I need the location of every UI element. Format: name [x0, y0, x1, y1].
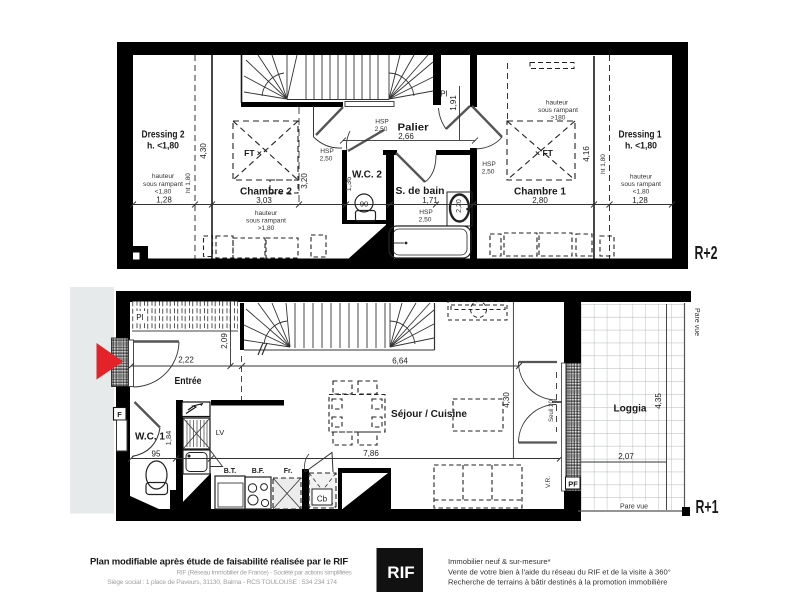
svg-text:Immobilier neuf & sur-mesure*: Immobilier neuf & sur-mesure* [448, 557, 551, 566]
svg-text:2,50: 2,50 [375, 126, 388, 133]
svg-text:Recherche de terrains à bâtir: Recherche de terrains à bâtir destinés à… [448, 578, 667, 587]
svg-text:2,80: 2,80 [532, 196, 548, 205]
svg-text:2,50: 2,50 [482, 169, 495, 176]
svg-text:7,86: 7,86 [363, 449, 379, 458]
svg-text:4,30: 4,30 [199, 143, 208, 159]
svg-text:90: 90 [360, 200, 368, 209]
svg-text:2,50: 2,50 [320, 156, 333, 163]
svg-text:Séjour / Cuisine: Séjour / Cuisine [391, 409, 467, 420]
svg-text:Plan modifiable après étude de: Plan modifiable après étude de faisabili… [90, 557, 348, 568]
svg-text:W.C. 1: W.C. 1 [135, 432, 165, 443]
svg-text:PI: PI [136, 313, 144, 322]
svg-text:Cb: Cb [317, 495, 328, 504]
svg-text:LV: LV [216, 428, 225, 437]
svg-text:HSP: HSP [375, 119, 389, 126]
svg-text:4,35: 4,35 [654, 393, 663, 409]
svg-text:PI: PI [440, 90, 448, 99]
svg-text:R+1: R+1 [696, 497, 719, 517]
svg-text:sous rampant: sous rampant [538, 107, 578, 114]
svg-text:2,66: 2,66 [398, 132, 414, 141]
svg-text:HSP: HSP [320, 148, 334, 155]
svg-text:PF: PF [568, 480, 578, 489]
svg-text:B.T.: B.T. [224, 468, 237, 475]
svg-text:Dressing 1: Dressing 1 [619, 130, 662, 141]
svg-text:Seuil 20: Seuil 20 [549, 399, 555, 421]
svg-text:× FT: × FT [535, 148, 554, 158]
svg-text:HSP: HSP [482, 161, 496, 168]
svg-text:1,36: 1,36 [344, 177, 353, 192]
svg-text:3,20: 3,20 [300, 173, 309, 189]
svg-text:6,64: 6,64 [392, 357, 408, 366]
svg-text:Dressing 2: Dressing 2 [142, 130, 185, 141]
svg-text:2,09: 2,09 [220, 333, 229, 349]
svg-text:Pare vue: Pare vue [693, 308, 700, 336]
svg-text:4,16: 4,16 [582, 146, 591, 162]
svg-text:1,28: 1,28 [156, 196, 172, 205]
svg-text:hauteur: hauteur [152, 173, 175, 180]
svg-text:Loggia: Loggia [614, 404, 647, 415]
svg-text:sous rampant: sous rampant [246, 218, 286, 225]
svg-text:2,22: 2,22 [178, 356, 194, 365]
svg-text:HSP: HSP [419, 209, 433, 216]
svg-text:R+2: R+2 [695, 243, 718, 263]
svg-text:RIF: RIF [387, 563, 414, 582]
svg-text:h. <1,80: h. <1,80 [147, 141, 179, 151]
svg-text:<1,80: <1,80 [155, 189, 172, 196]
svg-text:Entrée: Entrée [175, 376, 202, 387]
svg-text:Pare vue: Pare vue [620, 504, 648, 511]
svg-text:W.C. 2: W.C. 2 [352, 170, 382, 181]
svg-text:hauteur: hauteur [546, 100, 569, 107]
svg-text:V.R.: V.R. [545, 476, 552, 488]
svg-text:1,71: 1,71 [422, 196, 438, 205]
svg-text:sous rampant: sous rampant [621, 181, 661, 188]
svg-text:3,03: 3,03 [256, 196, 272, 205]
svg-text:hauteur: hauteur [630, 174, 653, 181]
svg-text:<1,80: <1,80 [633, 189, 650, 196]
svg-text:ht 1,80: ht 1,80 [185, 173, 192, 193]
svg-text:1,28: 1,28 [632, 196, 648, 205]
svg-text:F: F [117, 410, 122, 419]
svg-text:1,91: 1,91 [449, 95, 458, 111]
svg-text:h. <1,80: h. <1,80 [625, 141, 657, 151]
svg-text:sous rampant: sous rampant [143, 181, 183, 188]
svg-text:ht 1,80: ht 1,80 [600, 154, 607, 174]
svg-text:2,50: 2,50 [419, 217, 432, 224]
svg-text:>1,80: >1,80 [258, 225, 275, 232]
svg-text:2,07: 2,07 [618, 452, 634, 461]
svg-text:RIF (Réseau Immobilier de Fran: RIF (Réseau Immobilier de France) - Soci… [177, 570, 353, 577]
svg-text:95: 95 [152, 450, 161, 459]
svg-text:hauteur: hauteur [255, 210, 278, 217]
svg-text:4,30: 4,30 [502, 392, 511, 408]
svg-text:B.F.: B.F. [252, 468, 265, 475]
svg-text:Siège social : 1 place de Pave: Siège social : 1 place de Paveurs, 31130… [107, 579, 337, 586]
svg-text:1,84: 1,84 [164, 431, 173, 446]
svg-text:FT ×: FT × [244, 148, 262, 158]
svg-text:>180: >180 [551, 115, 566, 122]
svg-text:Fr.: Fr. [284, 468, 293, 475]
svg-text:2,20: 2,20 [456, 199, 463, 213]
svg-text:Vente de votre bien à l'aide d: Vente de votre bien à l'aide du réseau d… [448, 568, 671, 577]
